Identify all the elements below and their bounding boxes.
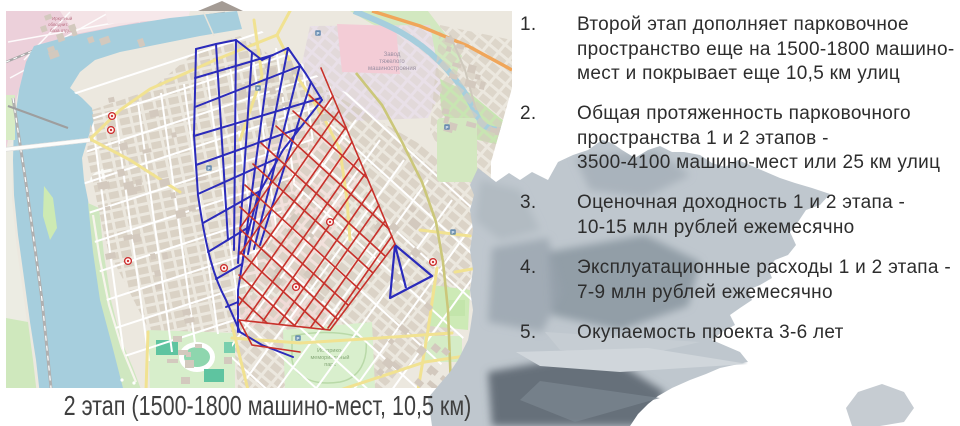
svg-text:тяжелого: тяжелого bbox=[379, 59, 405, 65]
svg-text:Завод: Завод bbox=[384, 52, 401, 58]
svg-text:P: P bbox=[256, 86, 259, 91]
svg-text:Иркутный: Иркутный bbox=[52, 15, 73, 21]
svg-text:P: P bbox=[316, 31, 319, 36]
svg-text:P: P bbox=[296, 336, 299, 341]
svg-text:P: P bbox=[451, 230, 454, 235]
svg-text:машиностроения: машиностроения bbox=[368, 66, 416, 72]
svg-text:P: P bbox=[207, 166, 210, 171]
svg-text:P: P bbox=[445, 125, 448, 130]
svg-text:обводнит.: обводнит. bbox=[48, 22, 68, 27]
svg-text:Историко-: Историко- bbox=[317, 348, 343, 354]
